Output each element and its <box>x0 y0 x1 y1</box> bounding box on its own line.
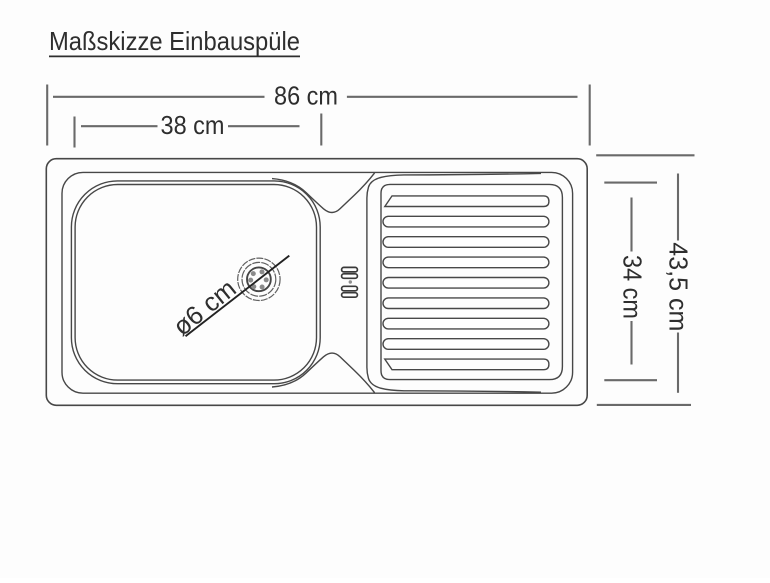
svg-text:34 cm: 34 cm <box>618 255 648 319</box>
svg-text:38 cm: 38 cm <box>161 110 225 140</box>
svg-text:43,5 cm: 43,5 cm <box>664 242 694 331</box>
svg-text:86 cm: 86 cm <box>274 81 338 111</box>
svg-text:Maßskizze Einbauspüle: Maßskizze Einbauspüle <box>49 26 300 56</box>
